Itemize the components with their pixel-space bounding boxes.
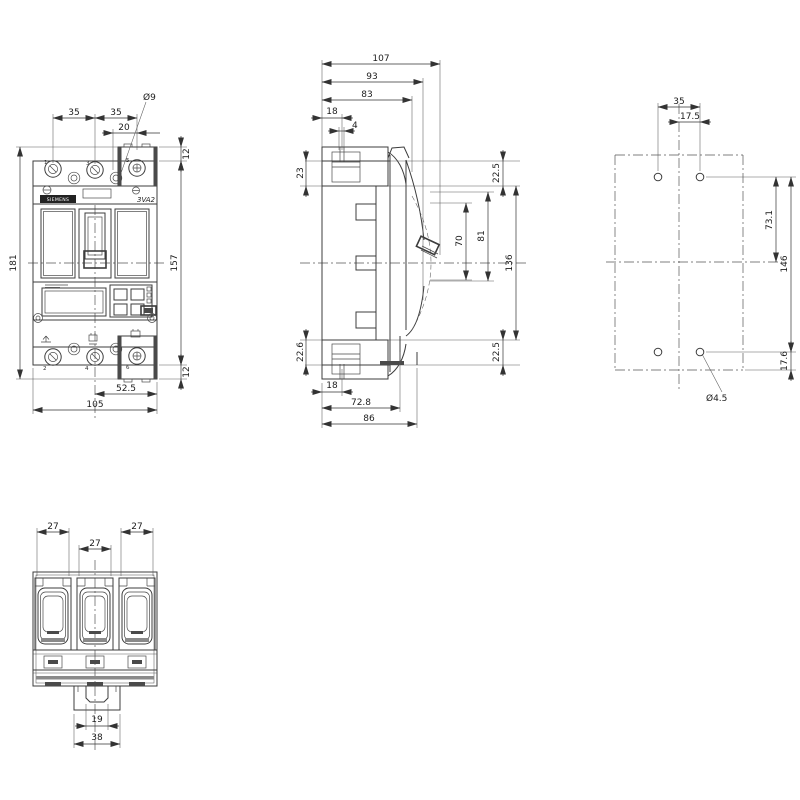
mounting-hole	[696, 348, 704, 356]
etu-button	[114, 289, 127, 300]
dia-9-label: Ø9	[143, 92, 156, 103]
front-top-terminal-box	[118, 147, 157, 186]
dim-157: 157	[170, 254, 180, 271]
dim-18-top: 18	[326, 107, 338, 117]
side-case-curve-bottom	[388, 344, 406, 376]
dim-35-holes: 35	[673, 97, 684, 107]
etu-button	[131, 289, 144, 300]
terminal-box-rail	[154, 147, 158, 186]
front-view: 1 3 5 SIEMENS 3VA2	[9, 92, 192, 418]
dim-17-6: 17.6	[780, 351, 790, 371]
pole-number-2: 2	[43, 366, 47, 372]
dim-83: 83	[361, 90, 372, 100]
etu-led	[147, 299, 151, 303]
dim-27-mid: 27	[89, 539, 100, 549]
dim-35-right: 35	[110, 108, 121, 118]
technical-drawing-canvas: 1 3 5 SIEMENS 3VA2	[0, 0, 800, 800]
side-escutcheon	[390, 155, 406, 372]
dim-136: 136	[505, 254, 515, 271]
dim-19: 19	[91, 715, 103, 725]
pole-number-5: 5	[126, 158, 130, 164]
dim-23: 23	[296, 167, 306, 178]
dim-18-bottom: 18	[326, 381, 338, 391]
mounting-view: 35 17.5 73.1 146 17.6 Ø4.5	[606, 97, 796, 404]
dim-4: 4	[352, 121, 358, 131]
dim-27-right: 27	[131, 522, 142, 532]
dim-146: 146	[780, 255, 790, 272]
dim-72-8: 72.8	[351, 398, 371, 408]
mounting-hole	[654, 348, 662, 356]
pole-number-3: 3	[86, 161, 90, 167]
etu-display-window	[42, 288, 106, 316]
front-dimensions: 35 35 20 Ø9 181 12 157 12 52.5	[9, 92, 192, 414]
din-contact-pad	[380, 361, 404, 365]
dim-70: 70	[455, 235, 465, 247]
din-rail-foot	[74, 686, 120, 710]
etu-button	[114, 304, 127, 315]
dim-17-5: 17.5	[680, 112, 700, 122]
dim-73-1: 73.1	[765, 210, 775, 230]
pole-number-4: 4	[85, 366, 89, 372]
model-label: 3VA2	[137, 196, 156, 204]
dim-38: 38	[91, 733, 103, 743]
pole-number-1: 1	[44, 160, 48, 166]
dim-105: 105	[86, 400, 103, 410]
front-bottom-terminal-box	[118, 336, 157, 379]
front-top-terminals	[43, 160, 145, 198]
dim-12-top: 12	[182, 148, 192, 159]
brand-label: SIEMENS	[47, 197, 70, 203]
dim-35-left: 35	[68, 108, 79, 118]
dim-22-5-bottom: 22.5	[492, 342, 502, 362]
etu-led	[147, 287, 151, 291]
dim-22-5-top: 22.5	[492, 163, 502, 183]
side-toggle-handle	[416, 236, 439, 254]
dim-27-left: 27	[47, 522, 58, 532]
dim-181: 181	[9, 254, 19, 271]
dim-22-6: 22.6	[296, 342, 306, 362]
bottom-view: 27 27 27 19 38	[33, 522, 157, 752]
pole-number-6: 6	[126, 365, 130, 371]
dim-12-bottom: 12	[182, 366, 192, 377]
dim-107: 107	[372, 54, 389, 64]
dim-81: 81	[477, 230, 487, 241]
dim-52-5: 52.5	[116, 384, 136, 394]
mounting-hole	[654, 173, 662, 181]
etu-led	[147, 293, 151, 297]
side-view: 107 93 83 18 4 23 22.6 22.5	[296, 54, 528, 428]
side-case-curve-top	[388, 152, 406, 184]
etu-label-marks	[45, 285, 68, 288]
dim-93: 93	[366, 72, 377, 82]
breaker-dimension-drawing: 1 3 5 SIEMENS 3VA2	[0, 0, 800, 800]
dim-20: 20	[118, 123, 130, 133]
mounting-hole	[696, 173, 704, 181]
dim-86: 86	[363, 414, 375, 424]
dia-4-5-label: Ø4.5	[706, 393, 727, 404]
